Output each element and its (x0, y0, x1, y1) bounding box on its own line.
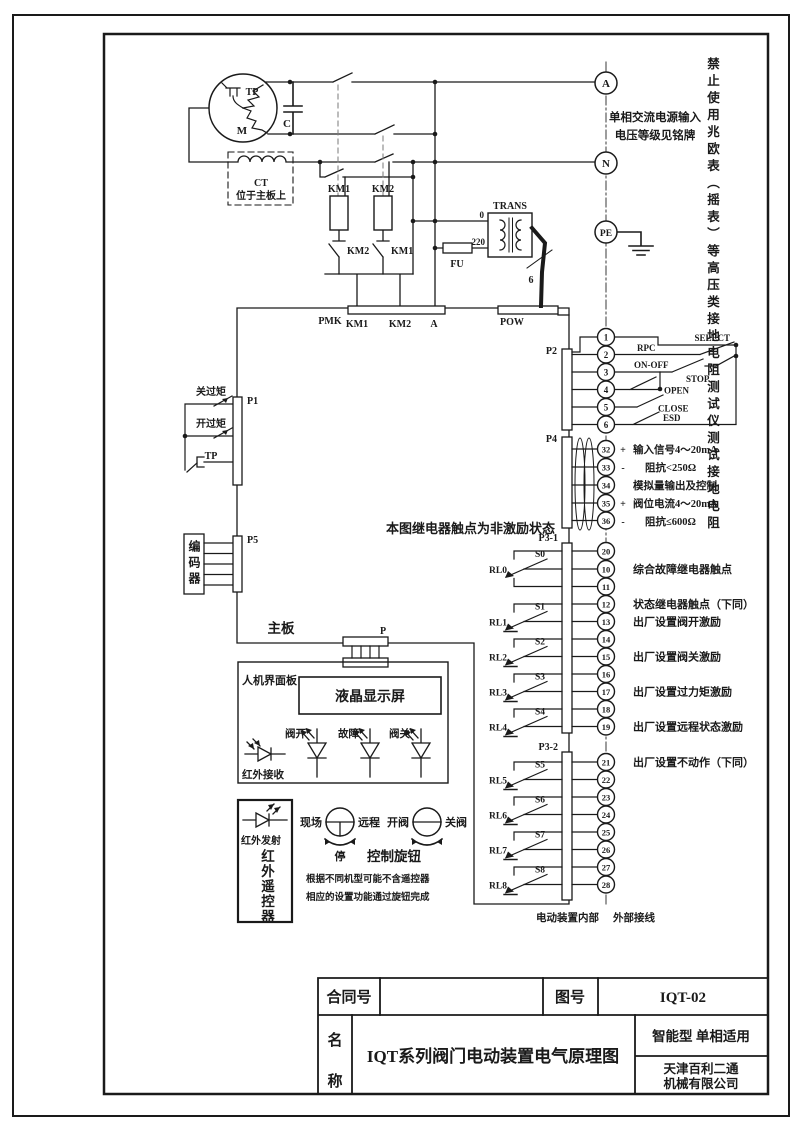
p3-2-connector (562, 752, 572, 900)
ann-21: 出厂设置不动作（下同） (633, 755, 754, 769)
fuse (443, 243, 472, 253)
p4-t33: 33 (602, 463, 611, 473)
relay-s7: S7 (535, 831, 545, 841)
encoder-label: 编码器 (186, 540, 203, 588)
trans-label: TRANS (493, 201, 527, 212)
relay-rl3: RL3 (489, 689, 507, 699)
p2-t3: 3 (604, 368, 609, 378)
p3-1-t15: 15 (602, 652, 611, 662)
ann-17: 出厂设置过力矩激励 (633, 685, 732, 699)
p4-t32: 32 (602, 445, 611, 455)
label-on-off: ON-OFF (634, 360, 669, 370)
relay-s6: S6 (535, 796, 545, 806)
contract-label: 合同号 (325, 988, 371, 1006)
p2-label: P2 (546, 346, 557, 357)
remote-note-2: 相应的设置功能通过旋钮完成 (306, 891, 430, 903)
transformer (488, 213, 532, 257)
drawing-title: IQT系列阀门电动装置电气原理图 (367, 1046, 619, 1066)
terminal-n: N (602, 158, 610, 170)
name-char-1: 名 (327, 1031, 342, 1049)
p5-label: P5 (247, 535, 258, 546)
p5-connector (233, 536, 242, 592)
type-note: 智能型 单相适用 (652, 1028, 750, 1044)
relay-s1: S1 (535, 603, 545, 613)
knob2-right-label: 关阀 (445, 815, 467, 829)
p4-text-33: 阻抗<250Ω (645, 461, 696, 474)
knob2-left-label: 开阀 (387, 815, 409, 829)
close-torque-label: 关过矩 (196, 385, 226, 398)
p2-t4: 4 (604, 385, 609, 395)
encoder-wires (204, 543, 233, 585)
knob1-bottom-label: 停 (335, 849, 346, 863)
relay-rl8: RL8 (489, 882, 507, 892)
ir-receiver-icon (245, 739, 285, 761)
terminal-pe: PE (600, 229, 612, 239)
ann-10: 综合故障继电器触点 (633, 562, 732, 576)
p4-t36: 36 (602, 516, 611, 526)
pmk-pin-a: A (430, 319, 438, 330)
p3-1-t20: 20 (602, 547, 611, 557)
capacitor-label: C (283, 118, 291, 130)
p4-text-36: 阻抗≤600Ω (645, 515, 696, 528)
boundary-internal: 电动装置内部 (536, 911, 599, 924)
hmi-panel-label: 人机界面板 (242, 673, 298, 687)
relay-s2: S2 (535, 638, 545, 648)
p1-label: P1 (247, 396, 258, 407)
p3-1-t13: 13 (602, 617, 611, 627)
p3-2-t23: 23 (602, 793, 611, 803)
company-line2: 机械有限公司 (663, 1076, 738, 1091)
mainboard-outline (237, 308, 569, 904)
p2-t5: 5 (604, 403, 609, 413)
label-close: CLOSE (658, 404, 689, 414)
wire-count-label: 6 (529, 275, 534, 286)
relay-rl6: RL6 (489, 812, 507, 822)
supply-note-1: 单相交流电源输入 (609, 110, 701, 124)
megohmmeter-warning-text: 禁止使用兆欧表（摇表）等高压类接地电阻测试仪测试接地电阻 (703, 57, 722, 533)
terminal-a: A (602, 78, 610, 90)
ann-12: 状态继电器触点（下同） (633, 597, 754, 611)
ann-19: 出厂设置远程状态激励 (633, 720, 743, 734)
p3-1-relay-contacts (504, 551, 597, 737)
boundary-external: 外部接线 (612, 911, 655, 924)
led-open-label: 阀开 (285, 727, 306, 740)
p3-1-t16: 16 (602, 670, 611, 680)
p3-2-t25: 25 (602, 828, 611, 838)
mainboard-label: 主板 (268, 620, 295, 636)
ann-15: 出厂设置阀关激励 (633, 650, 721, 664)
ir-transmit-icon (243, 804, 287, 827)
coil-km1-label: KM1 (328, 184, 350, 195)
p4-t34: 34 (602, 481, 611, 491)
p4-sign-35: + (620, 499, 626, 510)
ct-label: CT (254, 178, 268, 189)
tp-switch-label: TP (205, 451, 218, 462)
p3-1-t11: 11 (602, 582, 610, 592)
ct-note: 位于主板上 (236, 189, 286, 202)
p3-2-t22: 22 (602, 775, 611, 785)
relay-rl5: RL5 (489, 777, 507, 787)
p3-2-label: P3-2 (539, 742, 558, 753)
relay-rl7: RL7 (489, 847, 507, 857)
relay-rl0: RL0 (489, 566, 507, 576)
company-line1: 天津百利二通 (663, 1061, 739, 1076)
nc-km1-label: KM1 (391, 246, 413, 257)
knobs-label: 控制旋钮 (367, 848, 421, 864)
led-close-label: 阀关 (389, 727, 410, 740)
p2-terminal-circles (598, 329, 615, 434)
knob1-right-label: 远程 (358, 815, 380, 829)
relay-rl4: RL4 (489, 724, 507, 734)
motor-tp-label: TP (246, 87, 259, 98)
p4-label: P4 (546, 434, 557, 445)
valve-knob (412, 808, 442, 845)
p2-t6: 6 (604, 420, 609, 430)
coil-km2-label: KM2 (372, 184, 394, 195)
drawing-no-label: 图号 (555, 989, 585, 1006)
p3-1-label: P3-1 (539, 533, 558, 544)
label-rpc: RPC (637, 343, 656, 353)
open-torque-label: 开过矩 (196, 417, 226, 430)
p2-connector (562, 349, 572, 430)
knob1-left-label: 现场 (300, 815, 322, 829)
relay-s3: S3 (535, 673, 545, 683)
led-symbols (301, 728, 430, 777)
supply-note-2: 电压等级见铭牌 (615, 128, 696, 142)
p3-1-t17: 17 (602, 687, 611, 697)
p4-sign-36: - (621, 517, 624, 528)
nc-km2-label: KM2 (347, 246, 369, 257)
pmk-pin-km2: KM2 (389, 319, 411, 330)
pmk-pin-km1: KM1 (346, 319, 368, 330)
p4-sign-32: + (620, 445, 626, 456)
relay-state-note: 本图继电器触点为非激励状态 (386, 521, 555, 536)
p4-t35: 35 (602, 499, 611, 509)
mode-knob (325, 808, 355, 845)
p2-t1: 1 (604, 333, 609, 343)
fu-label: FU (450, 259, 463, 270)
led-fault-label: 故障 (338, 727, 359, 740)
pow-label: POW (500, 317, 524, 328)
p3-1-t14: 14 (602, 635, 611, 645)
p3-2-t28: 28 (602, 880, 611, 890)
p3-2-t21: 21 (602, 758, 611, 768)
remote-note-1: 根据不同机型可能不含遥控器 (306, 873, 430, 885)
p3-2-t27: 27 (602, 863, 611, 873)
label-open: OPEN (664, 386, 690, 396)
p3-2-relay-contacts (504, 762, 597, 895)
p3-1-connector (562, 543, 572, 733)
relay-rl1: RL1 (489, 619, 507, 629)
drawing-no-value: IQT-02 (660, 990, 706, 1006)
ir-receiver-label: 红外接收 (242, 768, 284, 781)
name-char-2: 称 (327, 1072, 342, 1090)
ir-transmit-label: 红外发射 (241, 834, 281, 847)
relay-s4: S4 (535, 708, 545, 718)
p3-1-t12: 12 (602, 600, 611, 610)
relay-s5: S5 (535, 761, 545, 771)
p4-connector (562, 437, 572, 528)
p4-shield (575, 438, 594, 530)
relay-s8: S8 (535, 866, 545, 876)
p3-1-t18: 18 (602, 705, 611, 715)
p3-1-t10: 10 (602, 565, 611, 575)
tap-220-label: 220 (472, 237, 486, 247)
pow-cable (532, 228, 545, 306)
contactor-coils (330, 196, 392, 230)
connector-bars-top (348, 306, 558, 314)
lcd-label: 液晶显示屏 (335, 688, 405, 705)
ann-13: 出厂设置阀开激励 (633, 615, 721, 629)
p1-connector (233, 397, 242, 485)
tap-0-label: 0 (480, 210, 485, 220)
label-esd: ESD (663, 413, 681, 423)
p3-2-t24: 24 (602, 810, 611, 820)
motor-label: M (237, 125, 248, 137)
pmk-label: PMK (318, 316, 342, 327)
relay-rl2: RL2 (489, 654, 507, 664)
p3-2-t26: 26 (602, 845, 611, 855)
p2-t2: 2 (604, 350, 609, 360)
schematic-drawing: TP M C CT 位于主板上 KM1 KM2 KM2 KM1 PMK KM1 … (0, 0, 800, 1131)
ir-remote-label: 红外遥控器 (256, 849, 276, 924)
p4-sign-33: - (621, 463, 624, 474)
relay-s0: S0 (535, 550, 545, 560)
p3-1-t19: 19 (602, 722, 611, 732)
p-label: P (380, 626, 386, 637)
schematic-page: TP M C CT 位于主板上 KM1 KM2 KM2 KM1 PMK KM1 … (0, 0, 800, 1131)
